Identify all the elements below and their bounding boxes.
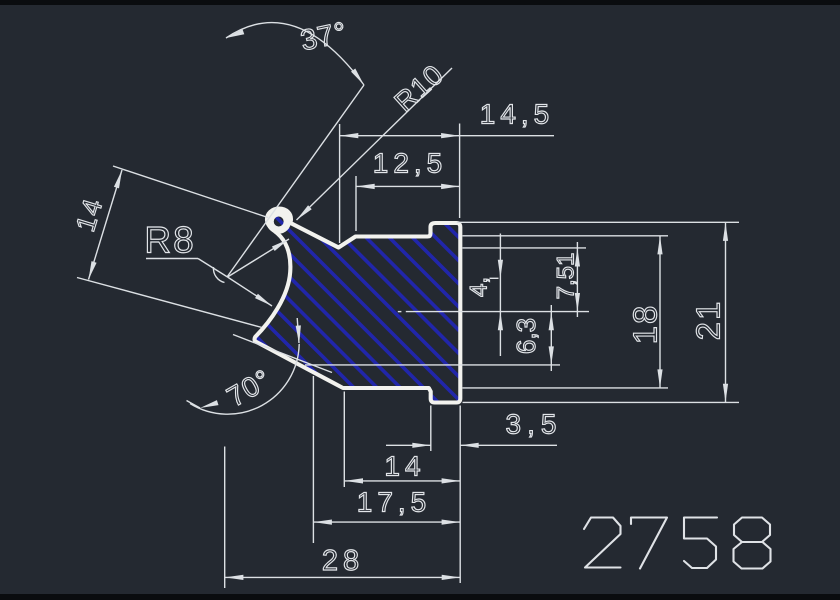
svg-text:14,5: 14,5 xyxy=(480,99,555,130)
svg-text:12,5: 12,5 xyxy=(373,148,448,179)
svg-text:21: 21 xyxy=(690,300,727,341)
svg-text:28: 28 xyxy=(322,545,364,577)
svg-text:R8: R8 xyxy=(144,220,195,261)
svg-text:4,: 4, xyxy=(466,277,493,297)
svg-text:6,3: 6,3 xyxy=(511,318,541,354)
svg-text:17,5: 17,5 xyxy=(357,487,432,518)
svg-text:14: 14 xyxy=(384,451,425,482)
svg-text:7,51: 7,51 xyxy=(553,253,580,300)
svg-text:18: 18 xyxy=(627,304,664,345)
svg-text:3,5: 3,5 xyxy=(506,409,563,440)
